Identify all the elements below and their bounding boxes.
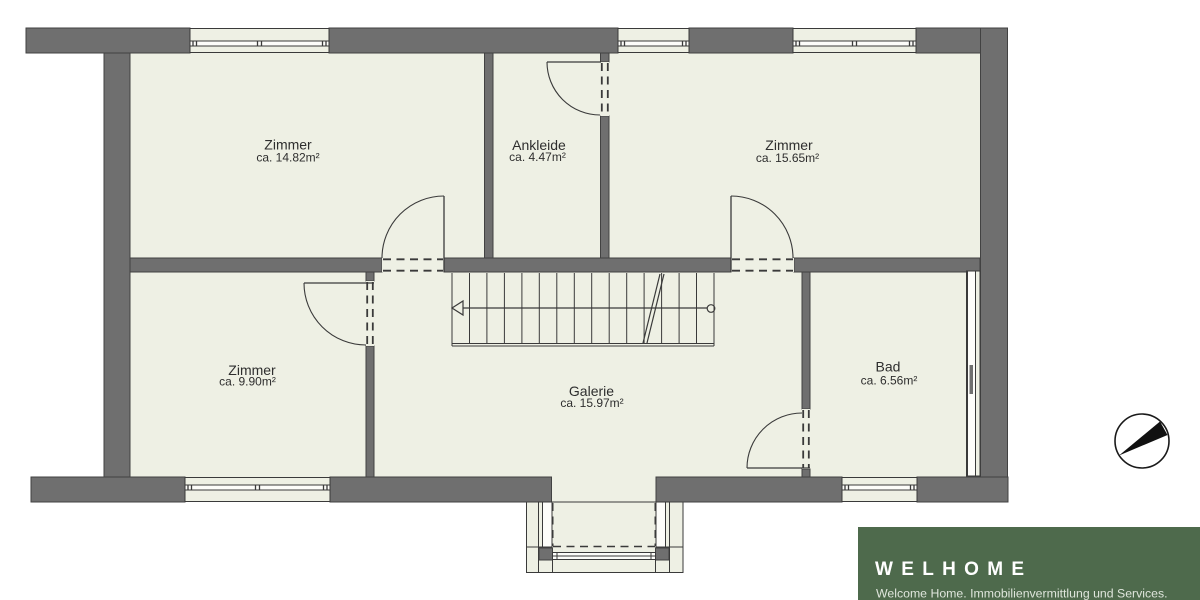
svg-text:ca. 4.47m²: ca. 4.47m²: [509, 150, 566, 164]
svg-text:ca. 9.90m²: ca. 9.90m²: [219, 375, 276, 389]
svg-text:ca. 15.97m²: ca. 15.97m²: [560, 396, 623, 410]
svg-text:ca. 6.56m²: ca. 6.56m²: [861, 374, 918, 388]
svg-text:Bad: Bad: [876, 359, 901, 375]
svg-text:Welcome Home. Immobilienvermit: Welcome Home. Immobilienvermittlung und …: [876, 587, 1168, 600]
svg-text:ca. 14.82m²: ca. 14.82m²: [256, 151, 319, 165]
svg-text:WELHOME: WELHOME: [875, 559, 1032, 580]
svg-text:ca. 15.65m²: ca. 15.65m²: [756, 151, 819, 165]
